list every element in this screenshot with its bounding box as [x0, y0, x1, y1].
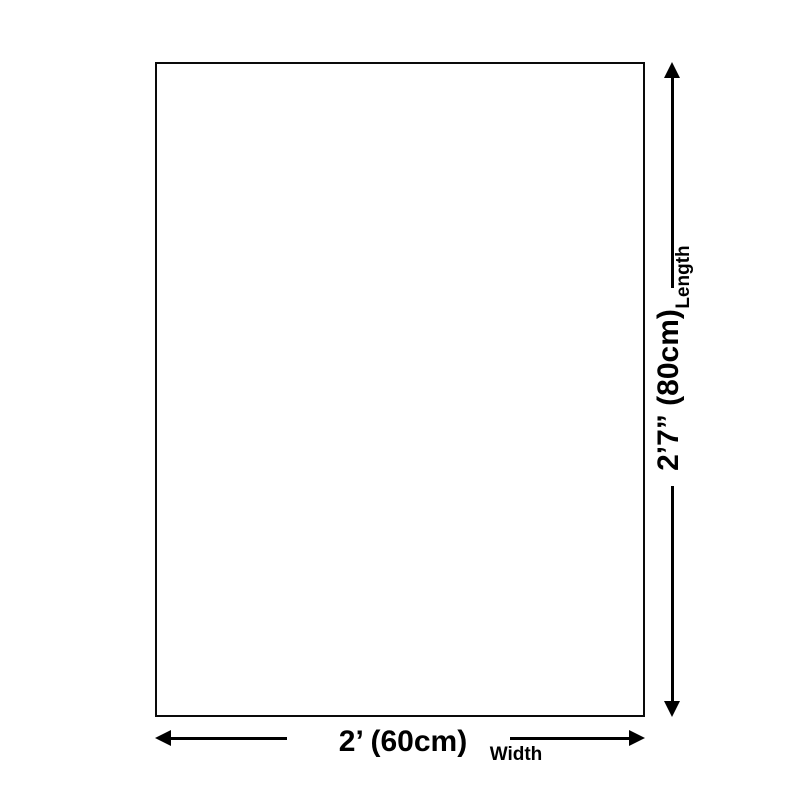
length-arrow-line-bottom — [671, 486, 674, 702]
arrow-right-icon — [629, 730, 645, 746]
width-value: 2’ (60cm) — [303, 727, 503, 757]
dimension-diagram: Length 2’7” (80cm) 2’ (60cm) Width — [0, 0, 800, 800]
width-arrow-line-right — [510, 737, 629, 740]
width-label: Width — [476, 746, 556, 764]
product-outline — [155, 62, 645, 717]
arrow-down-icon — [664, 701, 680, 717]
width-arrow-line-left — [169, 737, 287, 740]
length-value: 2’7” (80cm) — [654, 290, 684, 490]
